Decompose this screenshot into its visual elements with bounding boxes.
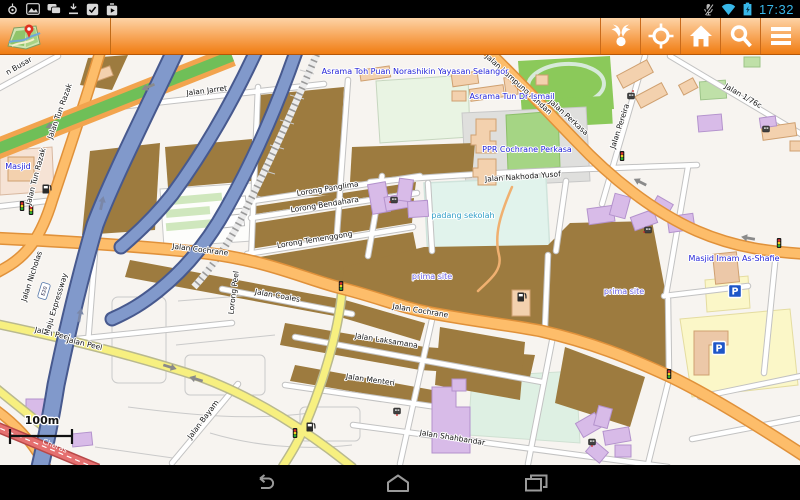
svg-text:Masjid Imam As-Shafie: Masjid Imam As-Shafie <box>689 254 780 263</box>
app-logo[interactable] <box>0 18 111 54</box>
share-button[interactable] <box>600 18 640 54</box>
search-button[interactable] <box>720 18 760 54</box>
poi-icon <box>763 126 770 132</box>
back-button[interactable] <box>235 469 295 496</box>
navigation-bar <box>0 465 800 500</box>
clock: 17:32 <box>759 2 794 17</box>
svg-text:P: P <box>716 344 723 355</box>
traffic-light-icon <box>339 281 344 291</box>
home-button[interactable] <box>680 18 720 54</box>
parking-icon: P <box>713 342 726 355</box>
task-done-icon <box>86 3 99 16</box>
menu-icon <box>768 23 794 49</box>
poi-icon <box>389 197 398 203</box>
home-nav-button[interactable] <box>368 469 428 496</box>
map-canvas[interactable]: P P E20 Jalan Jarret Jalan Kampung Panda… <box>0 55 800 465</box>
back-icon <box>253 474 277 492</box>
map-app-icon <box>6 22 42 51</box>
svg-text:PPR Cochrane Perkasa: PPR Cochrane Perkasa <box>482 145 572 154</box>
notification-icons <box>6 3 118 16</box>
my-location-icon <box>648 23 674 49</box>
svg-text:Masjid: Masjid <box>5 162 31 171</box>
traffic-light-icon <box>620 151 625 161</box>
traffic-light-icon <box>29 205 34 215</box>
download-icon <box>68 3 79 15</box>
recents-button[interactable] <box>506 469 566 496</box>
wifi-icon <box>721 3 736 16</box>
svg-text:padang sekolah: padang sekolah <box>431 211 494 220</box>
messages-icon <box>47 3 61 15</box>
parking-icon: P <box>729 285 742 298</box>
share-icon <box>608 23 634 49</box>
svg-text:Asrama Tun Dr Ismail: Asrama Tun Dr Ismail <box>469 92 554 101</box>
svg-text:P: P <box>732 287 739 298</box>
svg-text:100m: 100m <box>25 414 59 427</box>
app-toolbar <box>0 18 800 55</box>
battery-charging-icon <box>743 2 752 16</box>
gps-icon <box>6 3 19 16</box>
svg-text:prima site: prima site <box>604 287 644 296</box>
status-bar[interactable]: 17:32 <box>0 0 800 18</box>
home-nav-icon <box>385 474 411 492</box>
poi-icon <box>643 227 652 233</box>
search-icon <box>728 23 754 49</box>
recents-icon <box>524 474 548 492</box>
toolbar-spacer <box>111 18 600 54</box>
traffic-light-icon <box>293 428 298 438</box>
traffic-light-icon <box>667 369 672 379</box>
play-store-icon <box>106 3 118 16</box>
gallery-icon <box>26 3 40 15</box>
my-location-button[interactable] <box>640 18 680 54</box>
menu-button[interactable] <box>760 18 800 54</box>
map-view[interactable]: P P E20 Jalan Jarret Jalan Kampung Panda… <box>0 55 800 465</box>
svg-text:Asrama Toh Puan Norashikin Yay: Asrama Toh Puan Norashikin Yayasan Selan… <box>322 67 510 76</box>
traffic-light-icon <box>777 238 782 248</box>
svg-text:prima site: prima site <box>412 272 452 281</box>
android-screen: 17:32 <box>0 0 800 500</box>
home-icon <box>688 23 714 49</box>
mic-muted-icon <box>703 3 714 16</box>
system-status-icons: 17:32 <box>703 2 794 17</box>
